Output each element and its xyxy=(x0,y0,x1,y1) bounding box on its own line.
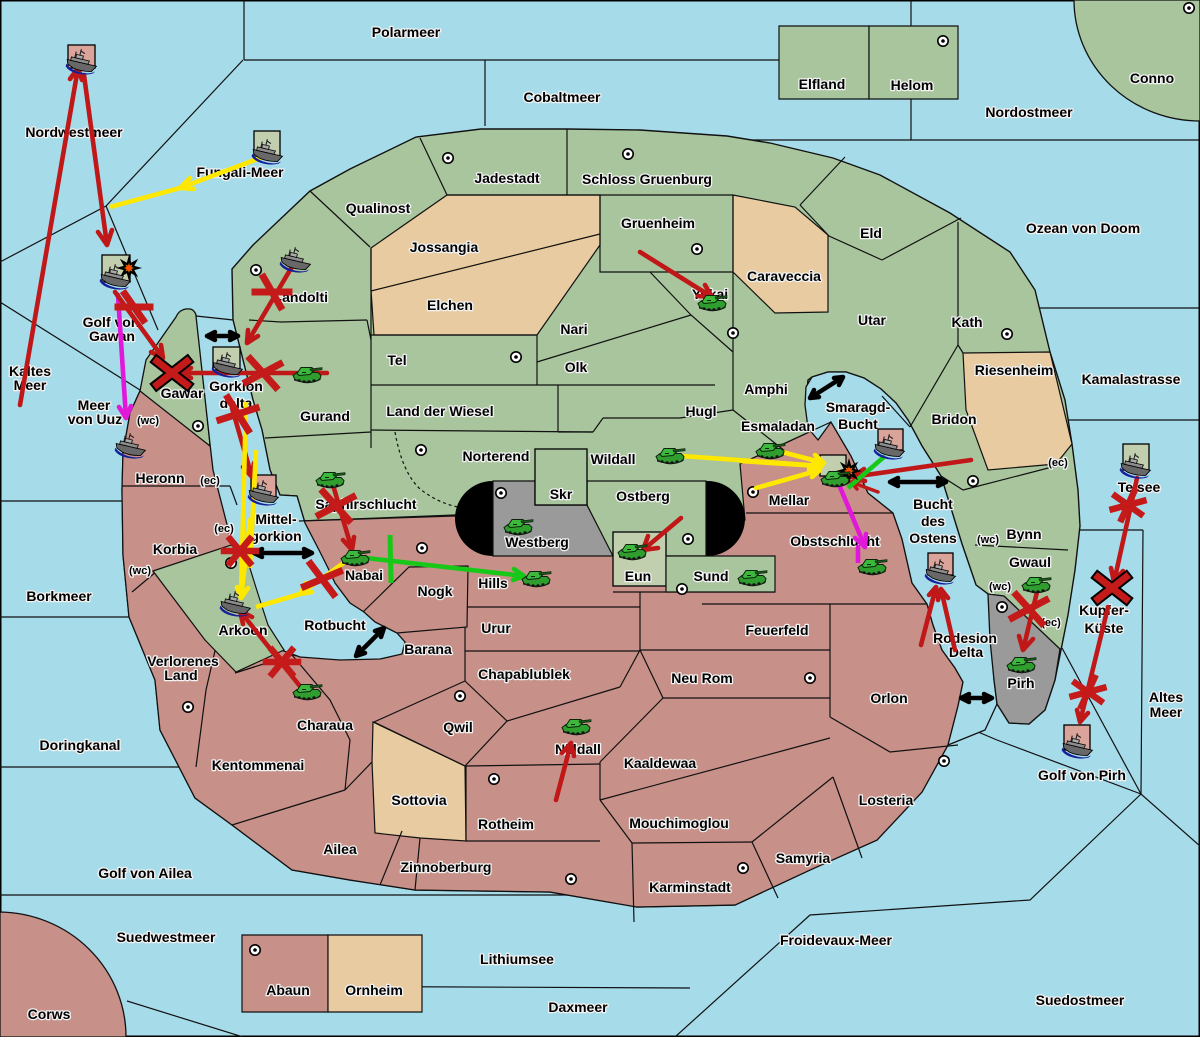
svg-text:Heronn: Heronn xyxy=(136,470,185,486)
svg-text:Riesenheim: Riesenheim xyxy=(975,362,1054,378)
svg-text:Ailea: Ailea xyxy=(323,841,357,857)
svg-text:Mellar: Mellar xyxy=(769,492,810,508)
svg-text:Nari: Nari xyxy=(560,321,587,337)
svg-text:Smaragd-: Smaragd- xyxy=(826,399,891,415)
svg-text:Meer: Meer xyxy=(14,377,47,393)
svg-text:Sund: Sund xyxy=(694,568,729,584)
svg-text:gorkion: gorkion xyxy=(250,528,301,544)
svg-text:Qwil: Qwil xyxy=(443,719,473,735)
svg-text:Gurand: Gurand xyxy=(300,408,350,424)
svg-text:(wc): (wc) xyxy=(137,415,159,427)
svg-text:Doringkanal: Doringkanal xyxy=(40,737,121,753)
svg-text:Suedwestmeer: Suedwestmeer xyxy=(117,929,216,945)
svg-text:Nordwestmeer: Nordwestmeer xyxy=(25,124,123,140)
svg-text:Charaua: Charaua xyxy=(297,717,353,733)
svg-text:(ec): (ec) xyxy=(200,475,220,487)
svg-text:Bynn: Bynn xyxy=(1007,526,1042,542)
svg-text:Kath: Kath xyxy=(951,314,982,330)
svg-text:Hills: Hills xyxy=(478,575,508,591)
svg-text:Ostberg: Ostberg xyxy=(616,488,670,504)
svg-text:Bucht: Bucht xyxy=(838,416,878,432)
svg-text:Amphi: Amphi xyxy=(744,381,788,397)
svg-text:Mouchimoglou: Mouchimoglou xyxy=(629,815,729,831)
svg-text:Urur: Urur xyxy=(481,620,511,636)
svg-text:Rotbucht: Rotbucht xyxy=(304,617,366,633)
svg-text:Land der Wiesel: Land der Wiesel xyxy=(386,403,493,419)
svg-text:Teisee: Teisee xyxy=(1118,479,1161,495)
svg-text:Eld: Eld xyxy=(860,225,882,241)
svg-text:Lithiumsee: Lithiumsee xyxy=(480,951,554,967)
svg-text:von Uuz: von Uuz xyxy=(68,411,122,427)
svg-text:Olk: Olk xyxy=(565,359,588,375)
svg-text:Gawan: Gawan xyxy=(89,328,135,344)
svg-text:Caraveccia: Caraveccia xyxy=(747,268,821,284)
svg-text:Norterend: Norterend xyxy=(463,448,530,464)
svg-text:(wc): (wc) xyxy=(129,565,151,577)
svg-text:Conno: Conno xyxy=(1130,70,1174,86)
svg-text:Borkmeer: Borkmeer xyxy=(26,588,92,604)
svg-text:Bridon: Bridon xyxy=(931,411,976,427)
svg-text:Golf von Pirh: Golf von Pirh xyxy=(1038,767,1126,783)
svg-text:Ornheim: Ornheim xyxy=(345,982,403,998)
svg-text:Ozean von Doom: Ozean von Doom xyxy=(1026,220,1140,236)
svg-text:(ec): (ec) xyxy=(214,523,234,535)
svg-text:Elchen: Elchen xyxy=(427,297,473,313)
svg-text:Nordostmeer: Nordostmeer xyxy=(985,104,1073,120)
svg-text:(ec): (ec) xyxy=(1048,457,1068,469)
svg-text:Hugl: Hugl xyxy=(685,403,716,419)
svg-text:Polarmeer: Polarmeer xyxy=(372,24,441,40)
svg-text:Meer: Meer xyxy=(1150,704,1183,720)
svg-text:Froidevaux-Meer: Froidevaux-Meer xyxy=(780,932,893,948)
svg-text:Sottovia: Sottovia xyxy=(391,792,446,808)
svg-text:Gwaul: Gwaul xyxy=(1009,554,1051,570)
svg-text:Orlon: Orlon xyxy=(870,690,907,706)
svg-text:Neu Rom: Neu Rom xyxy=(671,670,732,686)
svg-text:Suedostmeer: Suedostmeer xyxy=(1036,992,1125,1008)
svg-text:Chapablublek: Chapablublek xyxy=(478,666,570,682)
svg-text:Korbia: Korbia xyxy=(153,541,198,557)
svg-text:Gruenheim: Gruenheim xyxy=(621,215,695,231)
svg-text:Tel: Tel xyxy=(387,352,406,368)
svg-text:Skr: Skr xyxy=(550,486,573,502)
svg-text:Mittel-: Mittel- xyxy=(255,511,297,527)
svg-text:Nogk: Nogk xyxy=(418,583,453,599)
svg-text:Kaaldewaa: Kaaldewaa xyxy=(624,755,697,771)
svg-text:Golf von Ailea: Golf von Ailea xyxy=(98,865,192,881)
svg-text:Feuerfeld: Feuerfeld xyxy=(745,622,808,638)
svg-text:Pirh: Pirh xyxy=(1007,675,1034,691)
svg-text:Bucht: Bucht xyxy=(913,496,953,512)
svg-text:(wc): (wc) xyxy=(989,581,1011,593)
svg-text:Land: Land xyxy=(164,667,197,683)
svg-text:Ostens: Ostens xyxy=(909,530,957,546)
svg-text:(wc): (wc) xyxy=(977,534,999,546)
svg-text:Altes: Altes xyxy=(1149,689,1183,705)
svg-text:Rotheim: Rotheim xyxy=(478,816,534,832)
svg-text:Karminstadt: Karminstadt xyxy=(649,879,731,895)
svg-text:Abaun: Abaun xyxy=(266,982,310,998)
svg-text:Corws: Corws xyxy=(28,1006,71,1022)
svg-text:Schloss Gruenburg: Schloss Gruenburg xyxy=(582,171,712,187)
svg-text:Qualinost: Qualinost xyxy=(346,200,411,216)
svg-text:Nabai: Nabai xyxy=(345,567,383,583)
svg-text:Wildall: Wildall xyxy=(591,451,636,467)
svg-text:Eun: Eun xyxy=(625,568,651,584)
svg-text:Losteria: Losteria xyxy=(859,792,914,808)
svg-text:Daxmeer: Daxmeer xyxy=(548,999,608,1015)
svg-text:Utar: Utar xyxy=(858,312,887,328)
svg-text:Jossangia: Jossangia xyxy=(410,239,479,255)
svg-text:Barana: Barana xyxy=(404,641,452,657)
svg-text:Cobaltmeer: Cobaltmeer xyxy=(523,89,601,105)
svg-text:Esmaladan: Esmaladan xyxy=(741,418,815,434)
svg-text:Elfland: Elfland xyxy=(799,76,846,92)
svg-text:des: des xyxy=(921,513,945,529)
svg-text:Westberg: Westberg xyxy=(505,534,569,550)
svg-text:Helom: Helom xyxy=(891,77,934,93)
svg-text:Samyria: Samyria xyxy=(776,850,831,866)
svg-text:Kamalastrasse: Kamalastrasse xyxy=(1082,371,1181,387)
svg-text:Jadestadt: Jadestadt xyxy=(474,170,540,186)
svg-text:Kentommenai: Kentommenai xyxy=(212,757,305,773)
svg-text:Zinnoberburg: Zinnoberburg xyxy=(401,859,492,875)
